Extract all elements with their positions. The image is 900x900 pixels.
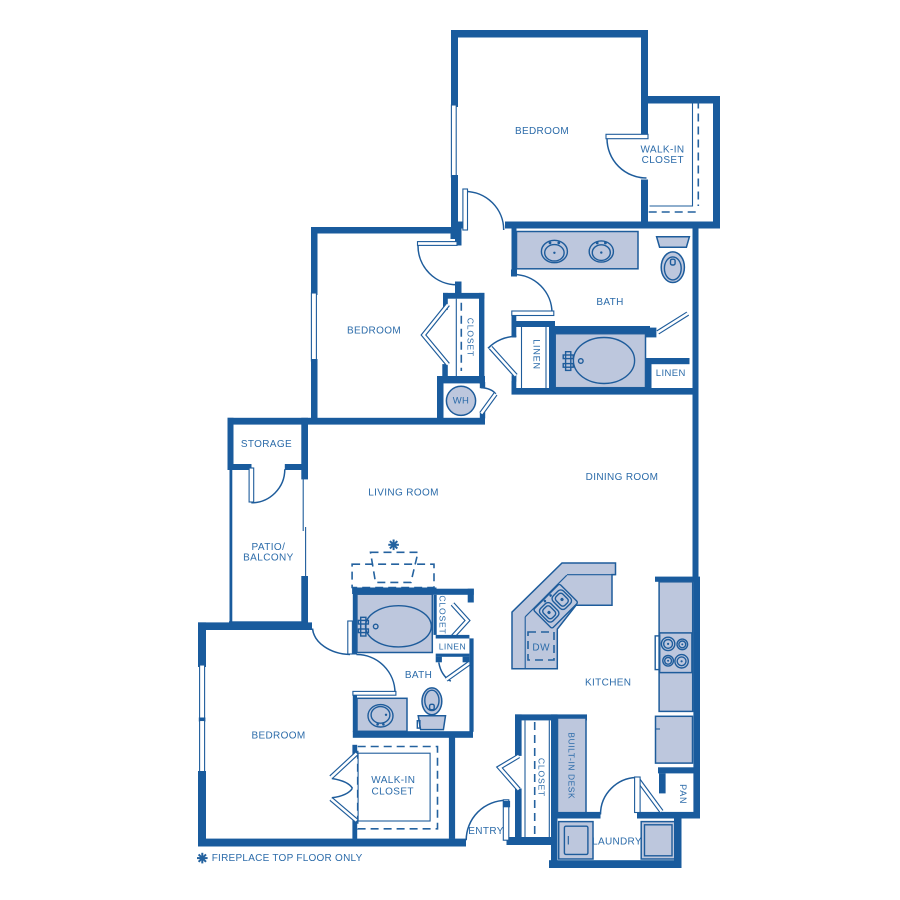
svg-text:CLOSET: CLOSET xyxy=(465,318,475,357)
svg-text:WH: WH xyxy=(453,396,469,407)
svg-text:BEDROOM: BEDROOM xyxy=(515,126,569,137)
svg-text:CLOSET: CLOSET xyxy=(537,758,547,797)
svg-text:BATH: BATH xyxy=(405,670,432,681)
svg-text:BALCONY: BALCONY xyxy=(243,553,294,564)
svg-text:BEDROOM: BEDROOM xyxy=(251,731,305,742)
svg-text:WALK-IN: WALK-IN xyxy=(371,775,415,786)
svg-text:BEDROOM: BEDROOM xyxy=(347,326,401,337)
svg-text:CLOSET: CLOSET xyxy=(371,786,413,797)
svg-text:STORAGE: STORAGE xyxy=(241,439,292,450)
svg-text:DINING ROOM: DINING ROOM xyxy=(586,472,659,483)
svg-text:LINEN: LINEN xyxy=(532,339,542,370)
svg-text:LAUNDRY: LAUNDRY xyxy=(592,837,642,848)
svg-text:KITCHEN: KITCHEN xyxy=(585,678,631,689)
svg-text:LINEN: LINEN xyxy=(439,641,466,651)
svg-text:PAN: PAN xyxy=(678,784,688,804)
svg-text:PATIO/: PATIO/ xyxy=(252,542,286,553)
svg-text:LIVING ROOM: LIVING ROOM xyxy=(368,488,439,499)
svg-text:BATH: BATH xyxy=(596,297,623,308)
svg-text:ENTRY: ENTRY xyxy=(468,826,503,837)
svg-text:DW: DW xyxy=(532,643,550,654)
svg-text:LINEN: LINEN xyxy=(656,368,686,379)
svg-text:FIREPLACE TOP FLOOR ONLY: FIREPLACE TOP FLOOR ONLY xyxy=(212,853,363,864)
svg-text:CLOSET: CLOSET xyxy=(642,155,684,166)
svg-text:BUILT-IN DESK: BUILT-IN DESK xyxy=(567,732,577,799)
svg-text:CLOSET: CLOSET xyxy=(438,595,448,634)
